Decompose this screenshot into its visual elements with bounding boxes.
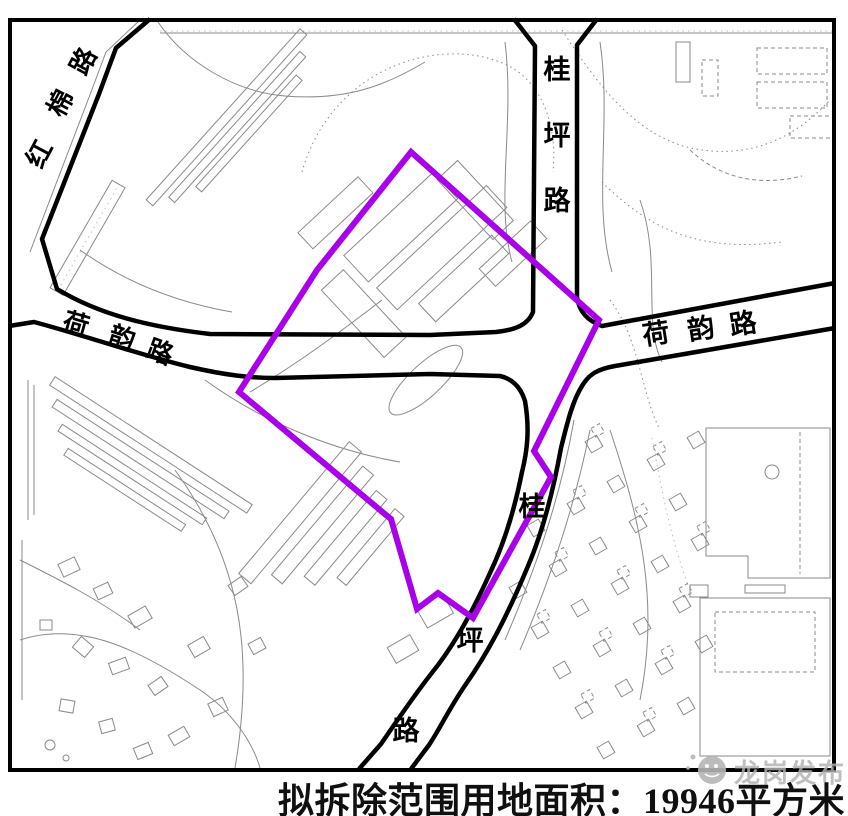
road-label-hongmian-char3: 路 — [64, 42, 103, 80]
map-canvas: 红 棉 路 桂 坪 路 荷 韵 路 荷 韵 路 桂 坪 路 龙岗发布 拟拆除范围… — [0, 0, 848, 816]
road-label-heyun-west-char3: 路 — [143, 333, 179, 370]
road-heyun-south-edge-guiping-west-edge — [9, 322, 528, 769]
roads — [9, 19, 835, 769]
road-guiping-east-edge-heyun-east-north — [577, 19, 835, 326]
watermark-dot — [691, 755, 696, 760]
road-label-heyun-east-char3: 路 — [727, 306, 760, 341]
road-label-hongmian-char2: 棉 — [41, 85, 80, 122]
watermark-dot — [686, 766, 690, 770]
watermark-logo-eye — [705, 764, 709, 768]
map-border — [10, 20, 834, 770]
house-grid — [509, 424, 713, 759]
road-hongmian-heyun-north-edge — [42, 19, 535, 335]
road-label-guiping-south-char1: 桂 — [519, 492, 546, 522]
road-label-heyun-east-char1: 荷 — [640, 317, 671, 351]
road-label-guiping-north-char3: 路 — [544, 185, 572, 216]
road-label-heyun-east-char2: 韵 — [685, 311, 717, 346]
road-label-guiping-south-char2: 坪 — [457, 626, 484, 656]
road-label-guiping-north-char1: 桂 — [544, 55, 571, 85]
demolition-boundary — [239, 152, 599, 618]
area-caption: 拟拆除范围用地面积：19946平方米 — [278, 781, 845, 816]
road-heyun-east-south-guiping-south-east-edge — [411, 328, 835, 769]
watermark-logo — [698, 756, 726, 784]
road-label-hongmian-char1: 红 — [20, 136, 59, 173]
map-detail-lines — [20, 20, 834, 768]
road-label-guiping-north-char2: 坪 — [544, 121, 571, 151]
road-label-guiping-south-char3: 路 — [393, 715, 421, 746]
planning-map-figure: 红 棉 路 桂 坪 路 荷 韵 路 荷 韵 路 桂 坪 路 龙岗发布 拟拆除范围… — [0, 0, 848, 816]
road-labels: 红 棉 路 桂 坪 路 荷 韵 路 荷 韵 路 桂 坪 路 — [20, 42, 760, 746]
watermark-logo-eye — [714, 764, 718, 768]
